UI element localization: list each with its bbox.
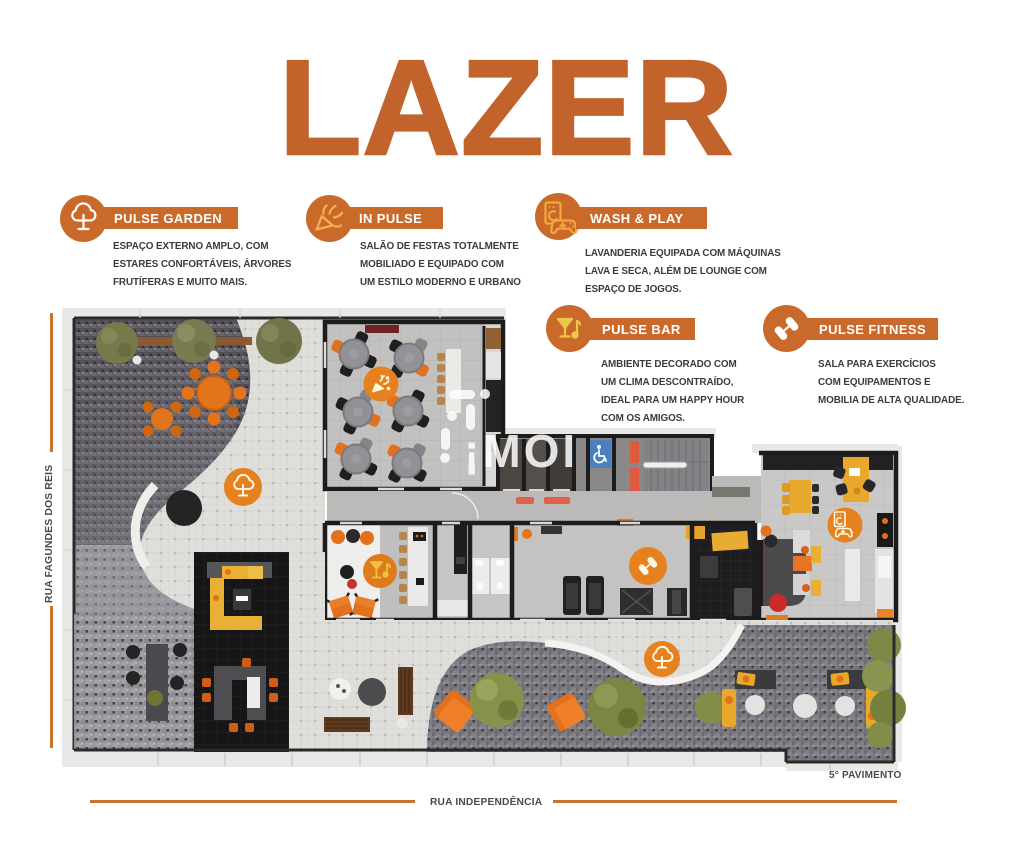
svg-text:¡MOI: ¡MOI [464,425,578,477]
